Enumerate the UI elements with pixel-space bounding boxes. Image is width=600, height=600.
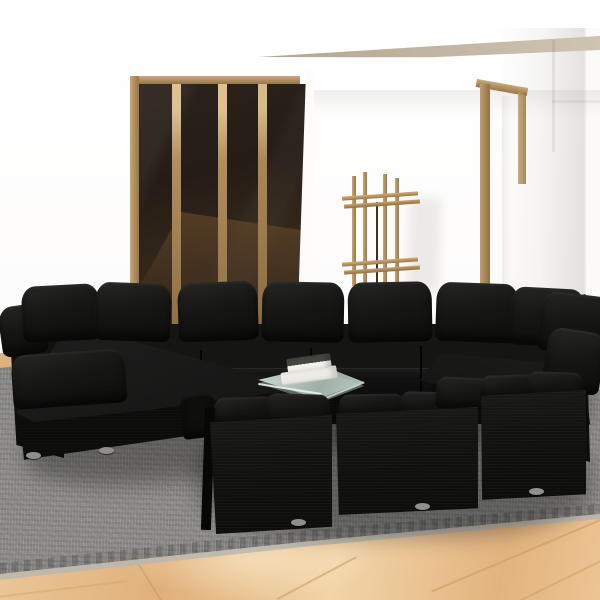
sofa-foot	[26, 452, 41, 459]
sofa-foot	[415, 503, 430, 510]
pillar-edge-shadow	[552, 40, 555, 152]
front-module-2	[336, 406, 478, 516]
front-module-1	[210, 414, 332, 534]
sofa-foot	[529, 488, 544, 495]
pillar-step-shadow	[552, 100, 600, 103]
glass-door-frame-top	[130, 76, 300, 84]
front-module-3	[480, 389, 586, 501]
right-doorframe-stub	[518, 92, 526, 184]
pillow	[21, 283, 102, 343]
sofa-foot	[291, 519, 306, 526]
pillow	[177, 281, 259, 343]
coat-rack	[344, 172, 416, 290]
rack-center-pole	[376, 202, 378, 288]
staged-room-photo	[0, 0, 600, 600]
partition-corner-shadow	[502, 96, 511, 296]
right-doorframe-post	[480, 84, 490, 286]
sofa-foot	[99, 447, 114, 454]
pillow	[94, 282, 172, 343]
pillow-left-arm	[10, 348, 127, 410]
pillow	[347, 281, 432, 342]
pillow	[261, 281, 344, 342]
pillow	[435, 282, 519, 344]
